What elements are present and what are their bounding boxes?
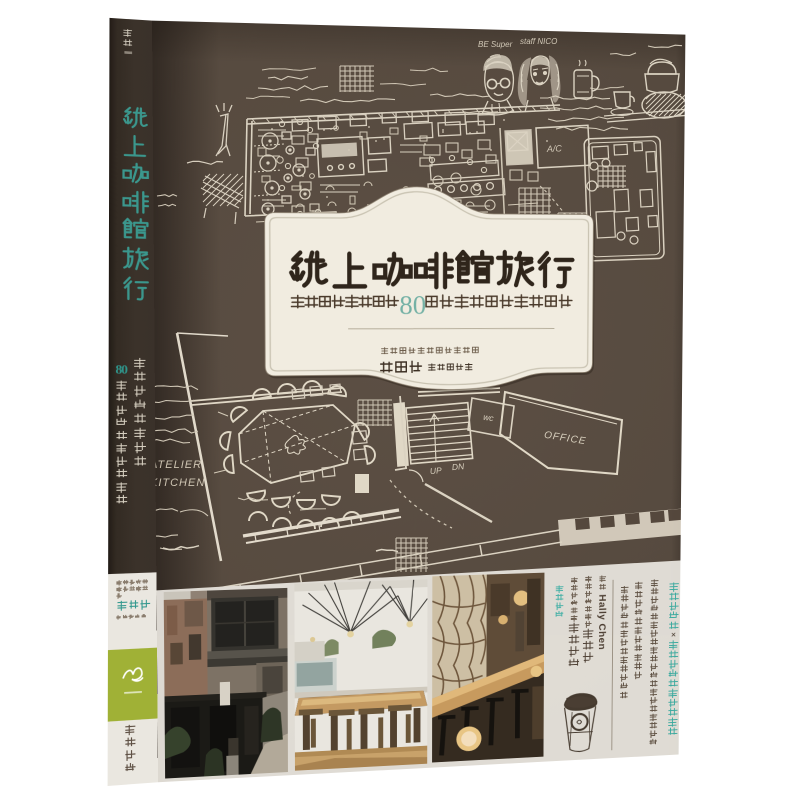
svg-text:80: 80 (399, 291, 426, 320)
